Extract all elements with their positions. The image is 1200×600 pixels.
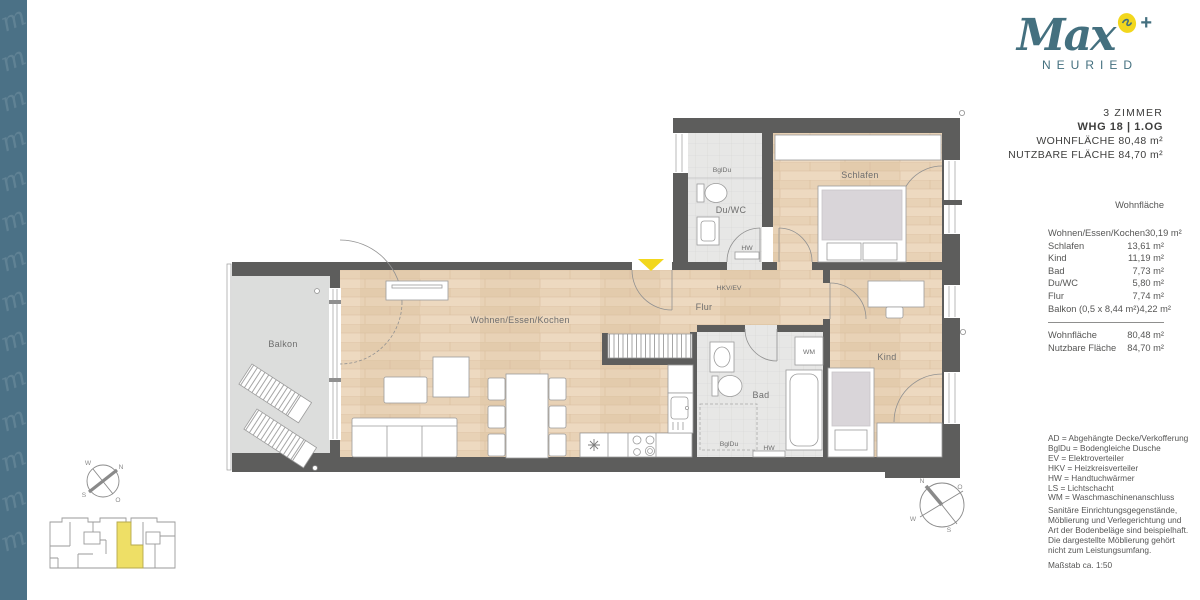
table-divider bbox=[1048, 322, 1164, 323]
compass-right-o: O bbox=[957, 484, 962, 491]
title-unit: WHG 18 | 1.OG bbox=[1008, 120, 1163, 134]
bathtub bbox=[786, 370, 822, 450]
table-row: Schlafen13,61 m² bbox=[1048, 240, 1164, 253]
area-table-header: Wohnfläche bbox=[1048, 200, 1164, 210]
table-total-row: Wohnfläche80,48 m² bbox=[1048, 329, 1164, 342]
row-value: 80,48 m² bbox=[1127, 329, 1164, 342]
table-row: Kind11,19 m² bbox=[1048, 252, 1164, 265]
compass-left-n: N bbox=[119, 464, 124, 471]
anno-bgldu-duwc: BglDu bbox=[713, 167, 732, 174]
scale-note: Maßstab ca. 1:50 bbox=[1048, 560, 1112, 570]
table-row: Balkon (0,5 x 8,44 m²)4,22 m² bbox=[1048, 303, 1164, 316]
compass-left-o: O bbox=[115, 497, 120, 504]
row-value: 84,70 m² bbox=[1127, 342, 1164, 355]
compass-left-s: S bbox=[82, 492, 87, 499]
title-usable-area: NUTZBARE FLÄCHE 84,70 m² bbox=[1008, 148, 1163, 162]
sofa bbox=[352, 418, 457, 457]
row-label: Nutzbare Fläche bbox=[1048, 342, 1116, 355]
compass-right-w: W bbox=[910, 516, 917, 523]
table-row: Du/WC5,80 m² bbox=[1048, 277, 1164, 290]
anno-hw-duwc: HW bbox=[741, 245, 753, 252]
title-living-area: WOHNFLÄCHE 80,48 m² bbox=[1008, 134, 1163, 148]
armchair bbox=[384, 377, 427, 403]
legend: AD = Abgehängte Decke/Verkofferung BglDu… bbox=[1048, 434, 1188, 503]
title-rooms: 3 ZIMMER bbox=[1008, 106, 1163, 120]
anno-hw-bad: HW bbox=[763, 445, 775, 452]
site-plan bbox=[50, 518, 175, 568]
logo-mark-icon bbox=[1116, 12, 1138, 41]
wardrobe bbox=[775, 135, 941, 160]
desk bbox=[868, 281, 924, 307]
row-label: Du/WC bbox=[1048, 277, 1078, 290]
anno-hkv-ev: HKV/EV bbox=[717, 285, 742, 292]
row-value: 7,73 m² bbox=[1132, 265, 1164, 278]
compass-right: N O W S bbox=[910, 478, 964, 534]
table-row: Flur7,74 m² bbox=[1048, 290, 1164, 303]
window-duwc bbox=[670, 133, 688, 173]
sink bbox=[668, 393, 693, 433]
row-label: Flur bbox=[1048, 290, 1064, 303]
anno-bgldu-bad: BglDu bbox=[720, 441, 739, 448]
dining-table bbox=[506, 374, 548, 458]
compass-left: W N S O bbox=[82, 460, 124, 504]
logo-plus: + bbox=[1140, 12, 1152, 35]
sideboard bbox=[386, 281, 448, 300]
dining-set bbox=[488, 374, 566, 458]
row-label: Bad bbox=[1048, 265, 1065, 278]
row-label: Kind bbox=[1048, 252, 1067, 265]
room-label-kind: Kind bbox=[877, 352, 896, 362]
table-total-row: Nutzbare Fläche84,70 m² bbox=[1048, 342, 1164, 355]
window-schlafen bbox=[944, 160, 962, 234]
title-block: 3 ZIMMER WHG 18 | 1.OG WOHNFLÄCHE 80,48 … bbox=[1008, 106, 1163, 162]
row-value: 4,22 m² bbox=[1139, 303, 1171, 316]
row-value: 5,80 m² bbox=[1132, 277, 1164, 290]
floor-plan: Balkon Wohnen/Essen/Kochen Flur Schlafen… bbox=[0, 0, 1200, 600]
window-kind-lower bbox=[944, 372, 962, 424]
compass-right-s: S bbox=[947, 527, 952, 534]
compass-left-w: W bbox=[85, 460, 92, 467]
anno-wm: WM bbox=[803, 349, 815, 356]
row-value: 11,19 m² bbox=[1128, 252, 1164, 265]
legend-line: WM = Waschmaschinenanschluss bbox=[1048, 493, 1188, 503]
row-label: Wohnfläche bbox=[1048, 329, 1097, 342]
room-label-duwc: Du/WC bbox=[716, 205, 747, 215]
row-value: 7,74 m² bbox=[1132, 290, 1164, 303]
balcony-railing bbox=[227, 264, 231, 470]
row-value: 13,61 m² bbox=[1127, 240, 1164, 253]
balcony-glazing bbox=[329, 288, 341, 440]
wardrobe-kind bbox=[877, 423, 942, 457]
coat-rack bbox=[608, 334, 692, 358]
area-table: Wohnfläche Wohnen/Essen/Kochen30,19 m² S… bbox=[1048, 200, 1164, 354]
logo-subtitle: NEURIED bbox=[992, 58, 1152, 72]
room-label-balkon: Balkon bbox=[268, 339, 297, 349]
disclaimer: Sanitäre Einrichtungsgegenstände, Möblie… bbox=[1048, 506, 1188, 556]
room-label-bad: Bad bbox=[753, 390, 770, 400]
logo-wordmark: Max bbox=[1017, 14, 1114, 58]
row-label: Wohnen/Essen/Kochen bbox=[1048, 227, 1145, 240]
room-label-schlafen: Schlafen bbox=[841, 170, 878, 180]
coffee-table bbox=[433, 357, 469, 397]
row-label: Schlafen bbox=[1048, 240, 1084, 253]
row-label: Balkon (0,5 x 8,44 m²) bbox=[1048, 303, 1139, 316]
compass-right-n: N bbox=[920, 478, 925, 485]
room-label-wohnen: Wohnen/Essen/Kochen bbox=[470, 315, 570, 325]
window-kind-upper bbox=[944, 285, 962, 318]
table-row: Wohnen/Essen/Kochen30,19 m² bbox=[1048, 227, 1164, 240]
row-value: 30,19 m² bbox=[1145, 227, 1182, 240]
room-label-flur: Flur bbox=[696, 302, 713, 312]
brand-logo: Max + NEURIED bbox=[992, 14, 1152, 72]
disclaimer-line: nicht zum Leistungsumfang. bbox=[1048, 546, 1188, 556]
table-row: Bad7,73 m² bbox=[1048, 265, 1164, 278]
